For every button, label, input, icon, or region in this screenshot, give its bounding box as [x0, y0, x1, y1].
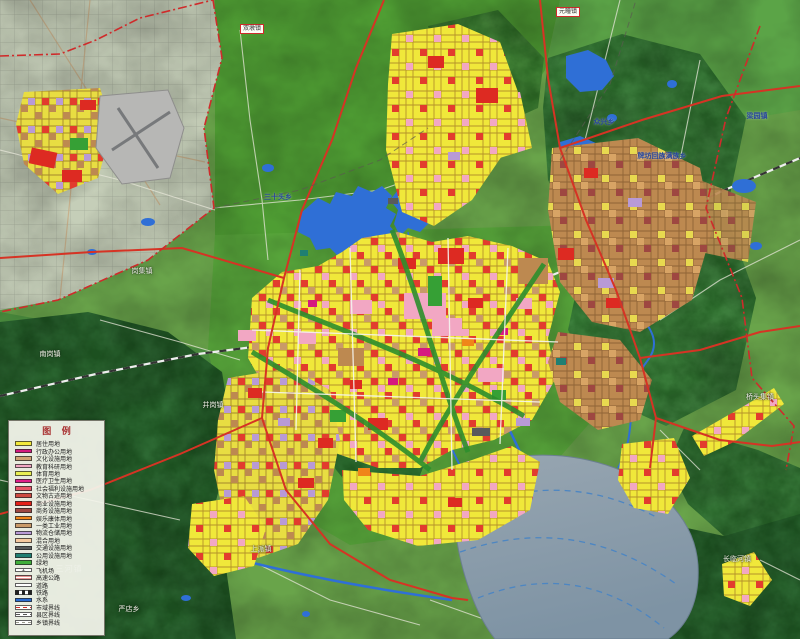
legend-swatch [15, 456, 32, 461]
legend-swatch [15, 598, 32, 603]
legend-swatch [15, 583, 32, 588]
legend-swatch [15, 523, 32, 528]
legend-swatch [15, 479, 32, 484]
legend-items: 居住用地行政办公用地文化设施用地教育科研用地体育用地医疗卫生用地社会福利设施用地… [15, 440, 102, 626]
legend-swatch [15, 560, 32, 565]
legend-panel: 图 例 居住用地行政办公用地文化设施用地教育科研用地体育用地医疗卫生用地社会福利… [8, 420, 105, 636]
legend-swatch [15, 620, 32, 625]
legend-swatch [15, 493, 32, 498]
planning-map-image: 双墩镇元疃镇梁园镇众兴乡牌坊回族满族乡三十头乡岗集镇南岗镇井岗镇桥头集镇上派镇长… [0, 0, 800, 639]
legend-item: 公用设施用地 [15, 552, 102, 559]
legend-swatch [15, 471, 32, 476]
legend-item: 道路 [15, 581, 102, 588]
legend-item: 高速公路 [15, 574, 102, 581]
legend-swatch [15, 449, 32, 454]
legend-swatch: ✈ [15, 568, 32, 573]
legend-swatch [15, 464, 32, 469]
legend-item-label: 乡镇界线 [36, 618, 60, 627]
legend-swatch [15, 441, 32, 446]
legend-swatch [15, 508, 32, 513]
legend-swatch [15, 612, 32, 617]
legend-swatch [15, 538, 32, 543]
legend-item: 铁路 [15, 589, 102, 596]
legend-swatch [15, 575, 32, 580]
legend-swatch [15, 590, 32, 595]
legend-swatch [15, 486, 32, 491]
legend-item: 乡镇界线 [15, 619, 102, 626]
legend-swatch [15, 605, 32, 610]
legend-swatch [15, 546, 32, 551]
planning-map[interactable] [0, 0, 800, 639]
legend-title: 图 例 [15, 424, 102, 437]
legend-swatch [15, 501, 32, 506]
legend-swatch [15, 516, 32, 521]
legend-swatch [15, 553, 32, 558]
legend-swatch [15, 531, 32, 536]
legend-item: 绿地 [15, 559, 102, 566]
